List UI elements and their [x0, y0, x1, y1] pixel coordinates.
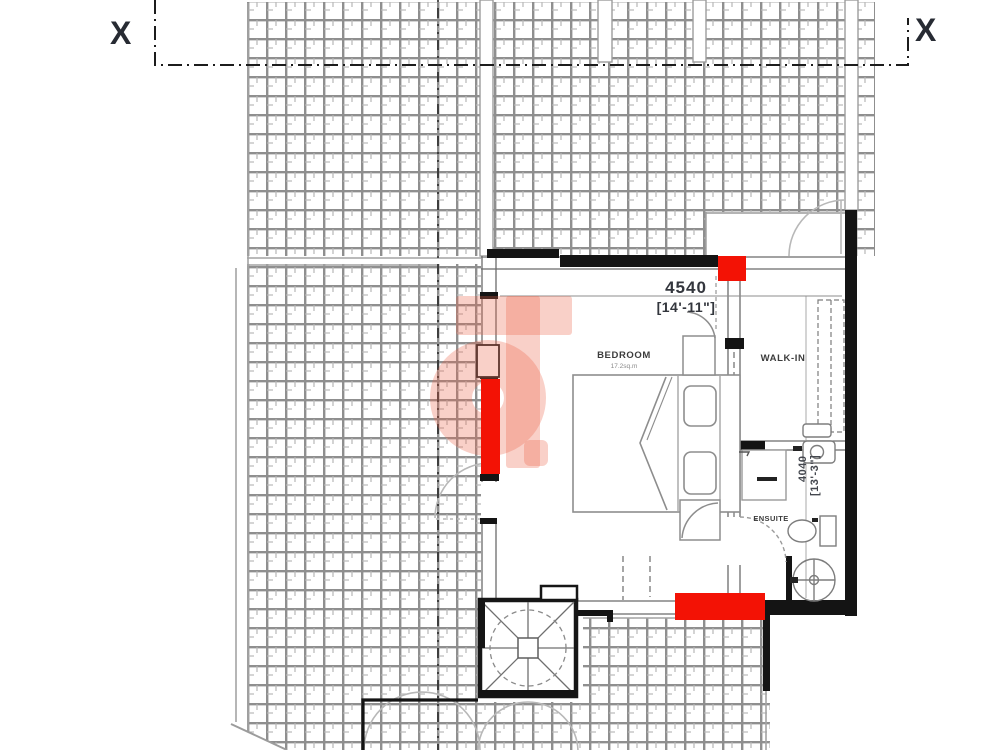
- floor-plan-canvas: X X 4540 [14'-11"] 4040 [13'-3"] BEDROOM…: [0, 0, 1000, 750]
- spiral-staircase: [478, 586, 577, 697]
- sink-shelf: [803, 424, 831, 437]
- walkin-label: WALK-IN: [761, 353, 806, 364]
- dim-depth-imperial: [13'-3"]: [809, 455, 821, 496]
- wc-bowl: [788, 520, 816, 542]
- section-marker-left: X: [110, 15, 132, 51]
- dim-width-mm: 4540: [665, 278, 707, 297]
- bedroom-area: 17.2sq.m: [611, 363, 638, 370]
- bedroom-label: BEDROOM: [597, 350, 651, 361]
- dim-depth-mm: 4040: [797, 456, 809, 482]
- double-bed: [573, 375, 740, 512]
- floor-plan-drawing: X X 4540 [14'-11"] 4040 [13'-3"] BEDROOM…: [0, 0, 1000, 750]
- highlight-left: [481, 379, 500, 474]
- dim-width-imperial: [14'-11"]: [657, 299, 716, 315]
- towel-rail: [757, 477, 777, 481]
- highlight-bottom: [675, 593, 765, 620]
- ensuite-label: ENSUITE: [753, 514, 788, 523]
- pillow: [684, 452, 716, 494]
- section-marker-right: X: [915, 12, 937, 48]
- wc-cistern: [820, 516, 836, 546]
- highlight-top: [718, 256, 746, 281]
- pillow: [684, 386, 716, 426]
